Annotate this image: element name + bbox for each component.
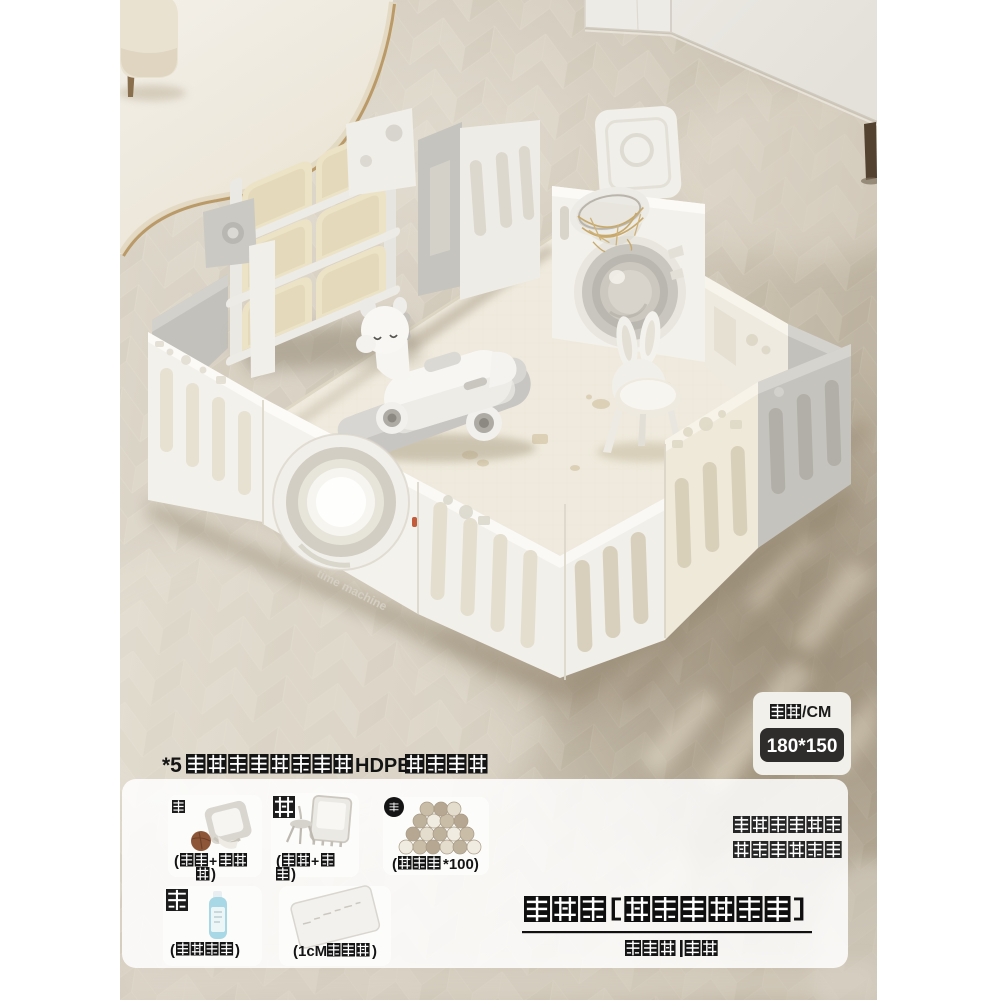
svg-text:): ) [235,942,240,959]
svg-text:): ) [372,943,377,960]
svg-text:): ) [291,866,296,883]
svg-text:(1cM: (1cM [293,943,327,960]
svg-text:*5: *5 [162,754,182,777]
svg-text:): ) [211,866,216,883]
svg-text:180*150: 180*150 [767,736,838,757]
svg-text:(: ( [170,942,175,959]
svg-text:/CM: /CM [802,704,831,721]
svg-text:(: ( [392,856,397,873]
svg-text:*100): *100) [443,856,479,873]
svg-text:(: ( [174,853,179,870]
svg-text:HDPE: HDPE [355,755,411,777]
svg-text:+: + [311,853,319,869]
